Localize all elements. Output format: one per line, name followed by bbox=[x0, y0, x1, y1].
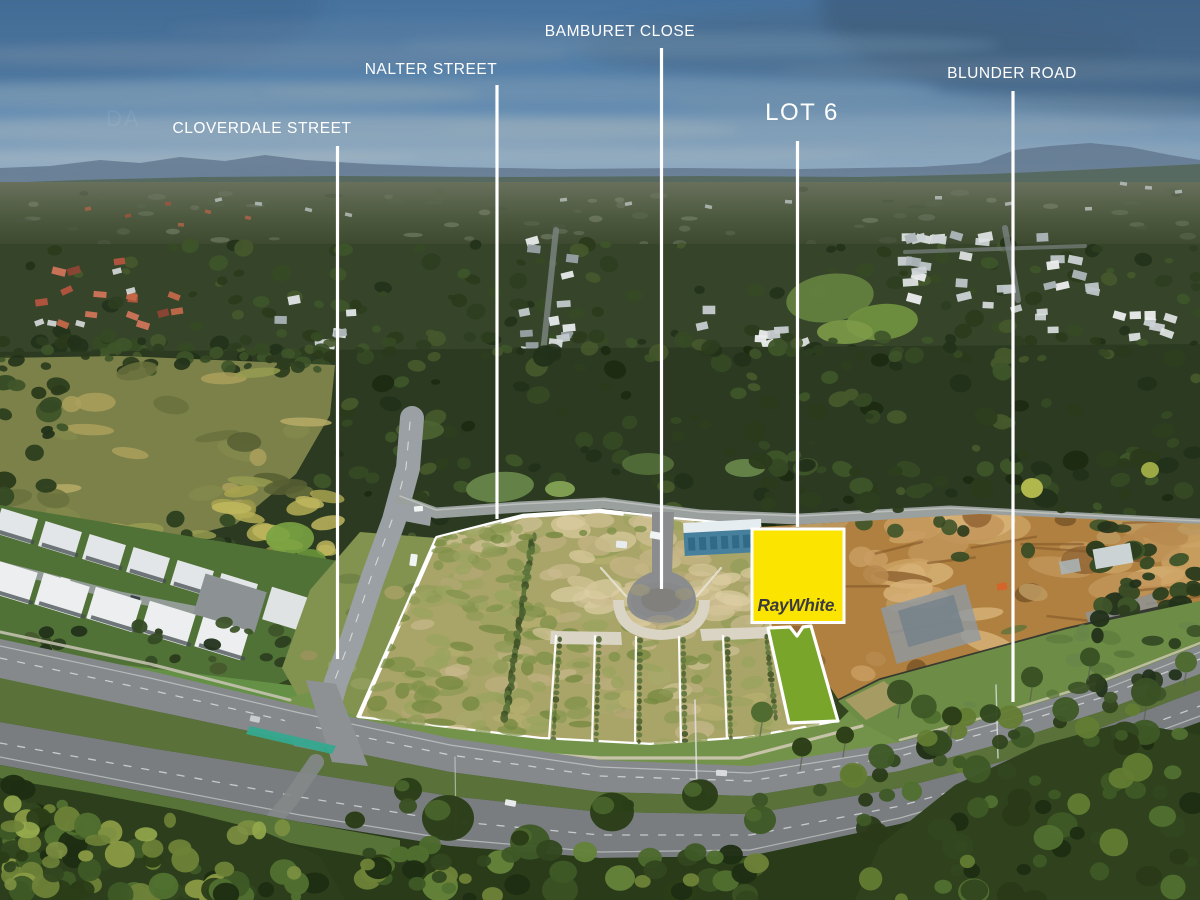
svg-text:BLUNDER ROAD: BLUNDER ROAD bbox=[947, 65, 1077, 82]
svg-text:DA: DA bbox=[106, 106, 141, 131]
svg-text:BAMBURET CLOSE: BAMBURET CLOSE bbox=[545, 23, 695, 40]
svg-text:NALTER STREET: NALTER STREET bbox=[365, 61, 498, 78]
svg-text:RayWhite.: RayWhite. bbox=[757, 595, 836, 615]
svg-text:LOT 6: LOT 6 bbox=[765, 99, 839, 126]
svg-text:CLOVERDALE STREET: CLOVERDALE STREET bbox=[172, 120, 351, 137]
